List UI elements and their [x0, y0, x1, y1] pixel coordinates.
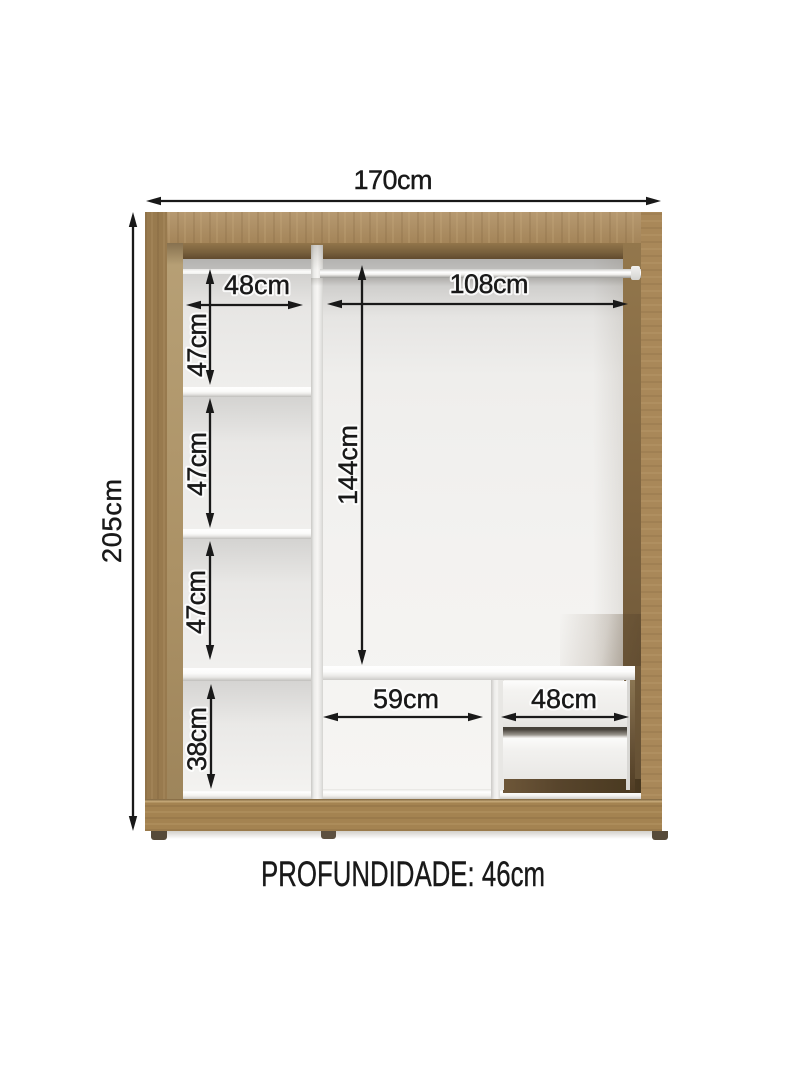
svg-text:108cm: 108cm	[450, 269, 529, 299]
svg-text:205cm: 205cm	[97, 479, 127, 563]
svg-text:47cm: 47cm	[181, 570, 211, 634]
svg-text:144cm: 144cm	[333, 425, 363, 505]
svg-text:47cm: 47cm	[182, 432, 212, 496]
svg-text:PROFUNDIDADE: 46cm: PROFUNDIDADE: 46cm	[261, 855, 545, 894]
svg-text:59cm: 59cm	[373, 684, 439, 714]
svg-text:170cm: 170cm	[354, 165, 433, 195]
svg-text:38cm: 38cm	[182, 707, 212, 771]
svg-text:47cm: 47cm	[182, 313, 212, 377]
svg-text:48cm: 48cm	[224, 270, 290, 300]
svg-text:48cm: 48cm	[531, 684, 597, 714]
